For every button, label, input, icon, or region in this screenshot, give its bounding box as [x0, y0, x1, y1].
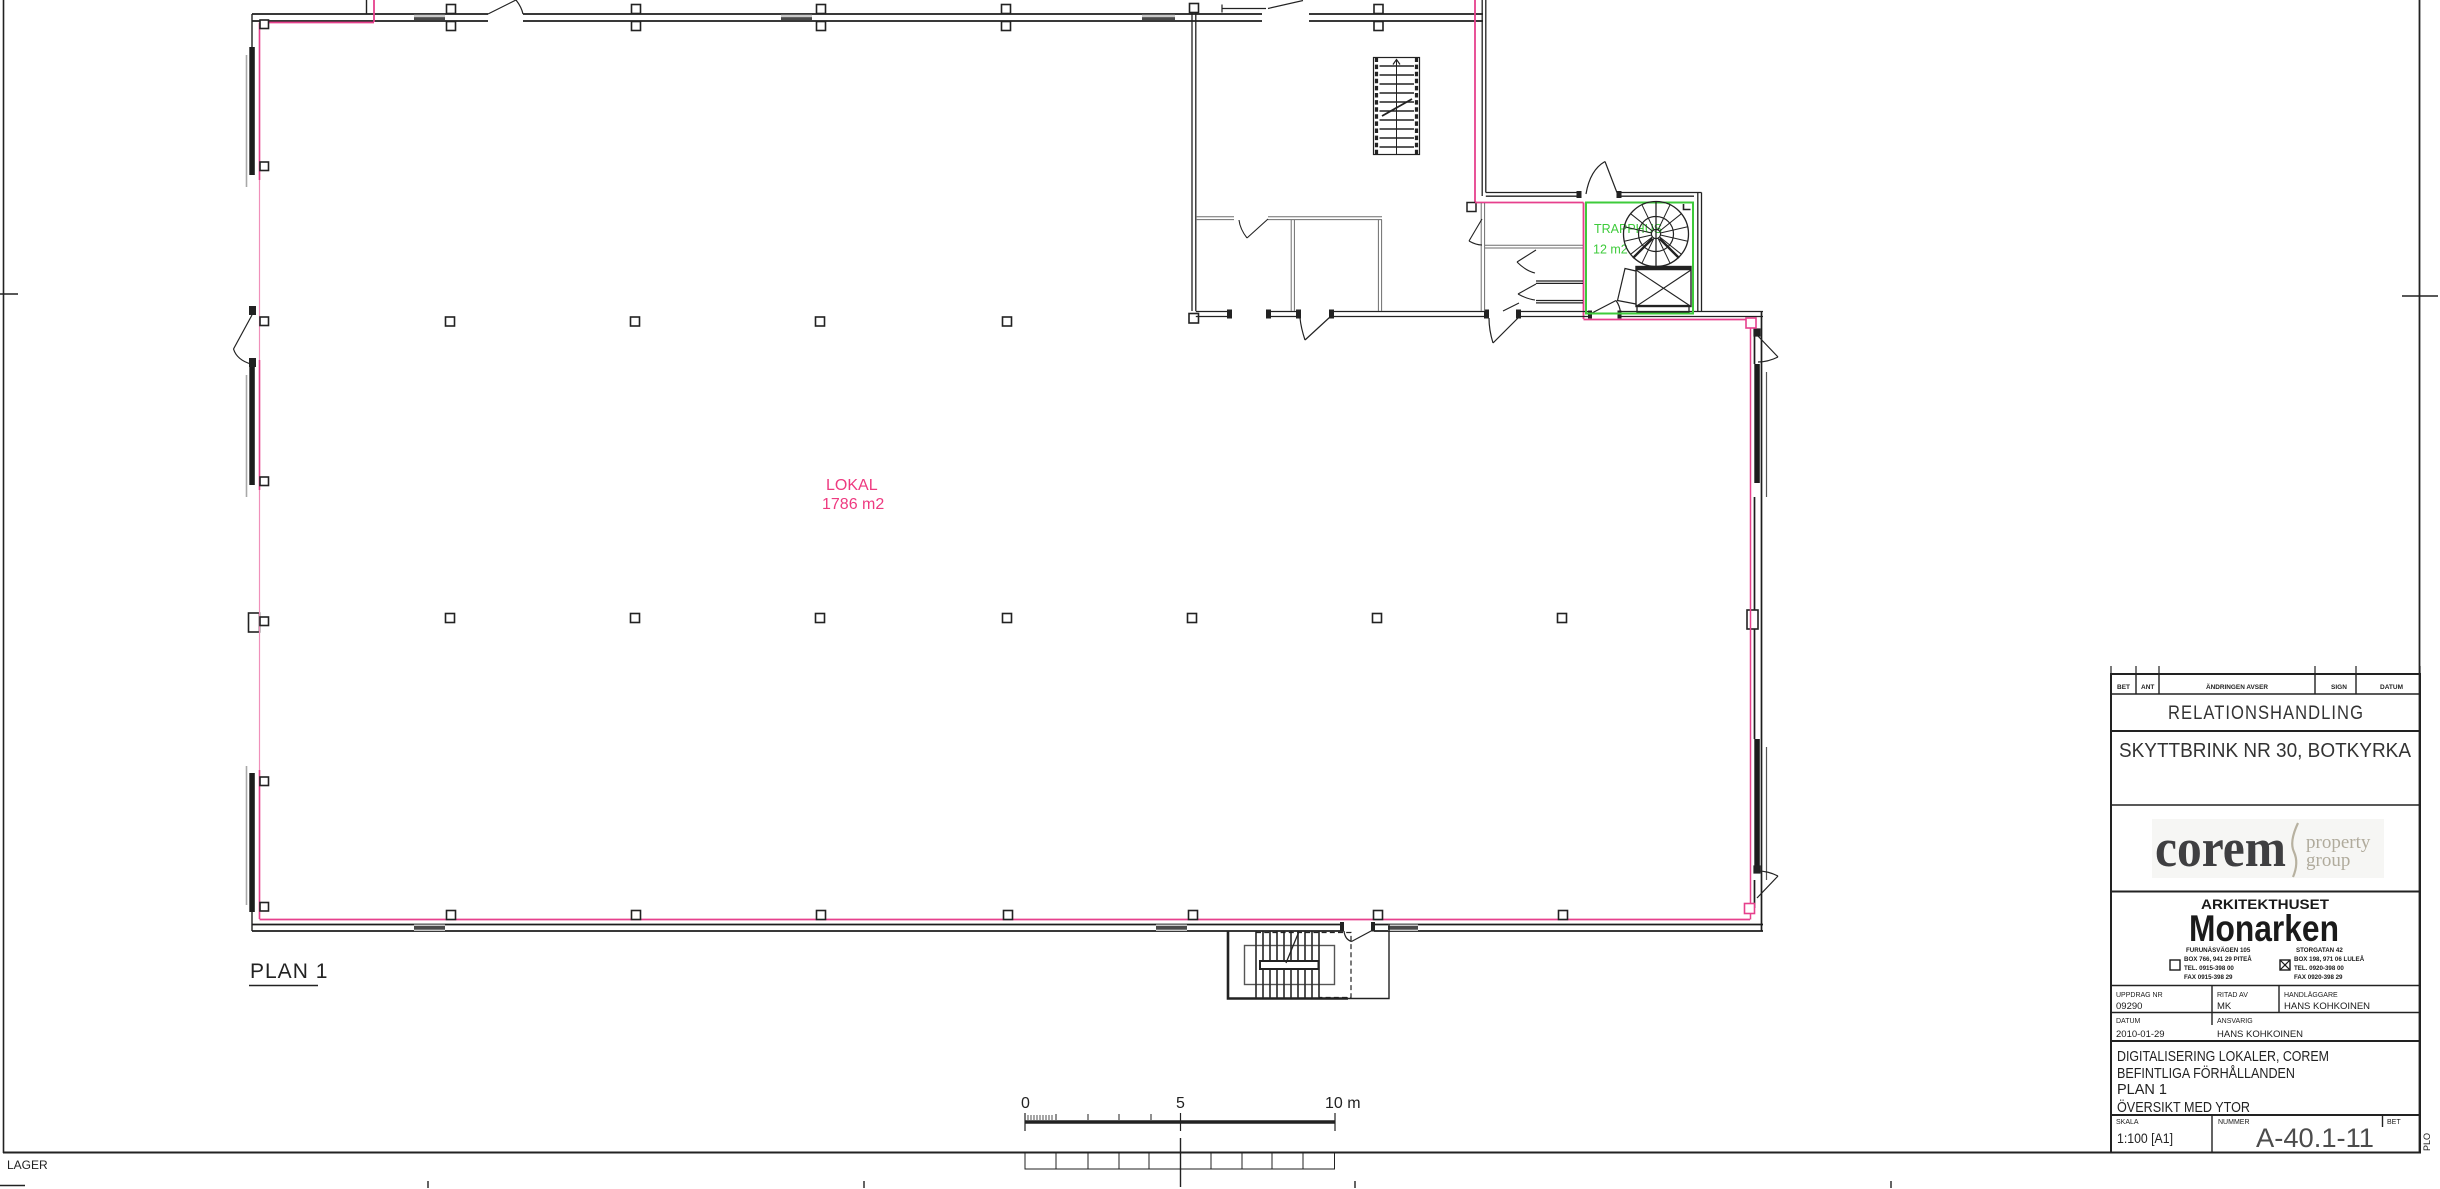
- svg-text:SKALA: SKALA: [2116, 1119, 2139, 1126]
- svg-text:RITAD AV: RITAD AV: [2217, 992, 2248, 999]
- svg-text:UPPDRAG NR: UPPDRAG NR: [2116, 992, 2163, 999]
- svg-text:NUMMER: NUMMER: [2218, 1119, 2250, 1126]
- svg-text:HANS KOHKOINEN: HANS KOHKOINEN: [2217, 1029, 2303, 1040]
- svg-text:LAGER: LAGER: [7, 1158, 48, 1172]
- svg-text:BOX 766, 941 29 PITEÅ: BOX 766, 941 29 PITEÅ: [2184, 956, 2252, 963]
- svg-text:ÄNDRINGEN AVSER: ÄNDRINGEN AVSER: [2206, 683, 2268, 691]
- svg-text:BEFINTLIGA FÖRHÅLLANDEN: BEFINTLIGA FÖRHÅLLANDEN: [2117, 1064, 2295, 1082]
- svg-text:2010-01-29: 2010-01-29: [2116, 1029, 2165, 1040]
- svg-text:10 m: 10 m: [1325, 1095, 1361, 1112]
- svg-text:DIGITALISERING LOKALER, COREM: DIGITALISERING LOKALER, COREM: [2117, 1049, 2329, 1065]
- svg-text:PLO: PLO: [2422, 1133, 2432, 1151]
- svg-text:ANSVARIG: ANSVARIG: [2217, 1018, 2253, 1025]
- svg-text:DATUM: DATUM: [2116, 1018, 2141, 1025]
- svg-text:HANDLÄGGARE: HANDLÄGGARE: [2284, 991, 2338, 999]
- svg-text:DATUM: DATUM: [2380, 684, 2403, 691]
- svg-text:STORGATAN 42: STORGATAN 42: [2296, 947, 2343, 954]
- svg-text:BOX 198, 971 06 LULEÅ: BOX 198, 971 06 LULEÅ: [2294, 956, 2365, 963]
- svg-text:PLAN 1: PLAN 1: [250, 960, 328, 983]
- svg-text:09290: 09290: [2116, 1001, 2142, 1012]
- svg-text:SIGN: SIGN: [2331, 684, 2347, 691]
- svg-text:FURUNÄSVÄGEN 105: FURUNÄSVÄGEN 105: [2186, 947, 2251, 954]
- svg-text:PLAN 1: PLAN 1: [2117, 1082, 2167, 1098]
- svg-text:corem: corem: [2155, 818, 2286, 878]
- svg-text:ÖVERSIKT MED YTOR: ÖVERSIKT MED YTOR: [2117, 1098, 2250, 1116]
- svg-text:MK: MK: [2217, 1001, 2232, 1012]
- svg-text:BET: BET: [2117, 684, 2130, 691]
- svg-text:1:100 [A1]: 1:100 [A1]: [2117, 1131, 2173, 1146]
- svg-text:FAX 0915-398 29: FAX 0915-398 29: [2184, 974, 2233, 981]
- svg-text:Monarken: Monarken: [2189, 908, 2339, 949]
- svg-text:HANS KOHKOINEN: HANS KOHKOINEN: [2284, 1001, 2370, 1012]
- svg-text:0: 0: [1021, 1095, 1030, 1112]
- svg-text:LOKAL: LOKAL: [826, 477, 878, 494]
- svg-text:A-40.1-11: A-40.1-11: [2256, 1123, 2374, 1153]
- svg-text:1786 m2: 1786 m2: [822, 496, 884, 513]
- svg-text:group: group: [2306, 850, 2350, 871]
- svg-text:ANT: ANT: [2141, 684, 2154, 691]
- svg-text:RELATIONSHANDLING: RELATIONSHANDLING: [2168, 703, 2364, 724]
- svg-text:SKYTTBRINK NR 30, BOTKYRKA: SKYTTBRINK NR 30, BOTKYRKA: [2119, 739, 2411, 762]
- svg-text:5: 5: [1176, 1095, 1185, 1112]
- svg-text:FAX 0920-398 29: FAX 0920-398 29: [2294, 974, 2343, 981]
- svg-text:TEL. 0920-398 00: TEL. 0920-398 00: [2294, 965, 2344, 972]
- svg-text:BET: BET: [2387, 1119, 2401, 1126]
- svg-text:TEL. 0915-398 00: TEL. 0915-398 00: [2184, 965, 2234, 972]
- svg-text:12 m2: 12 m2: [1593, 243, 1628, 257]
